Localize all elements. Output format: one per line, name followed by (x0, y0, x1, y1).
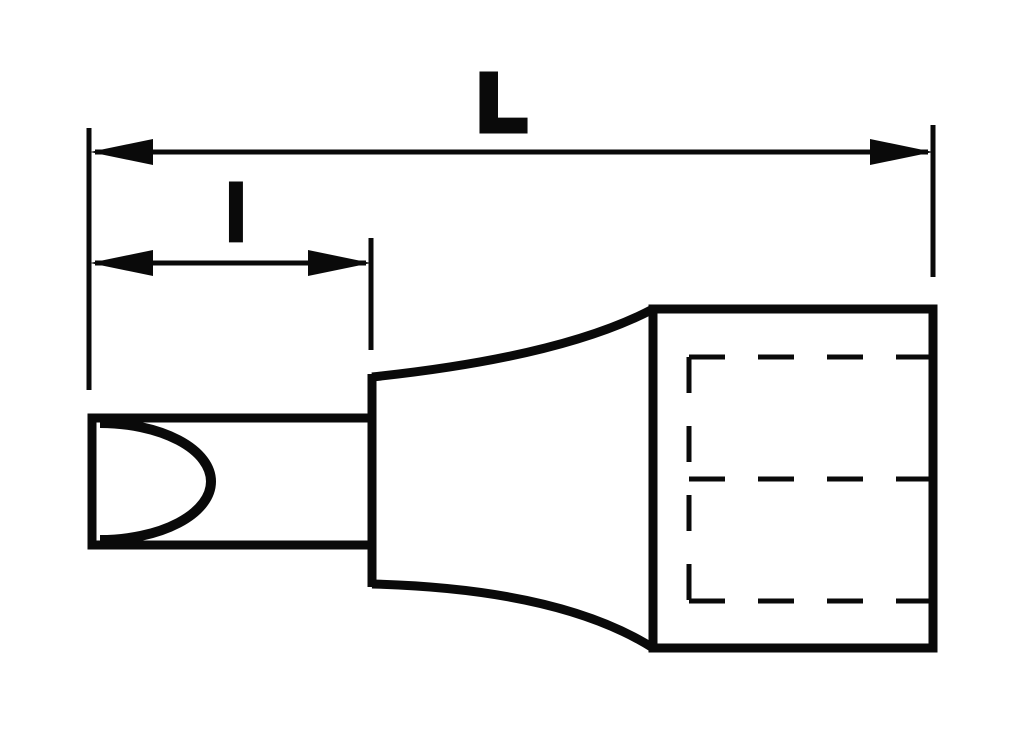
dimension-L-label: L (478, 58, 527, 147)
dimension-l-label: l (225, 169, 247, 258)
technical-drawing-canvas: L l (0, 0, 1024, 737)
drawing-page: L l (0, 0, 1024, 737)
